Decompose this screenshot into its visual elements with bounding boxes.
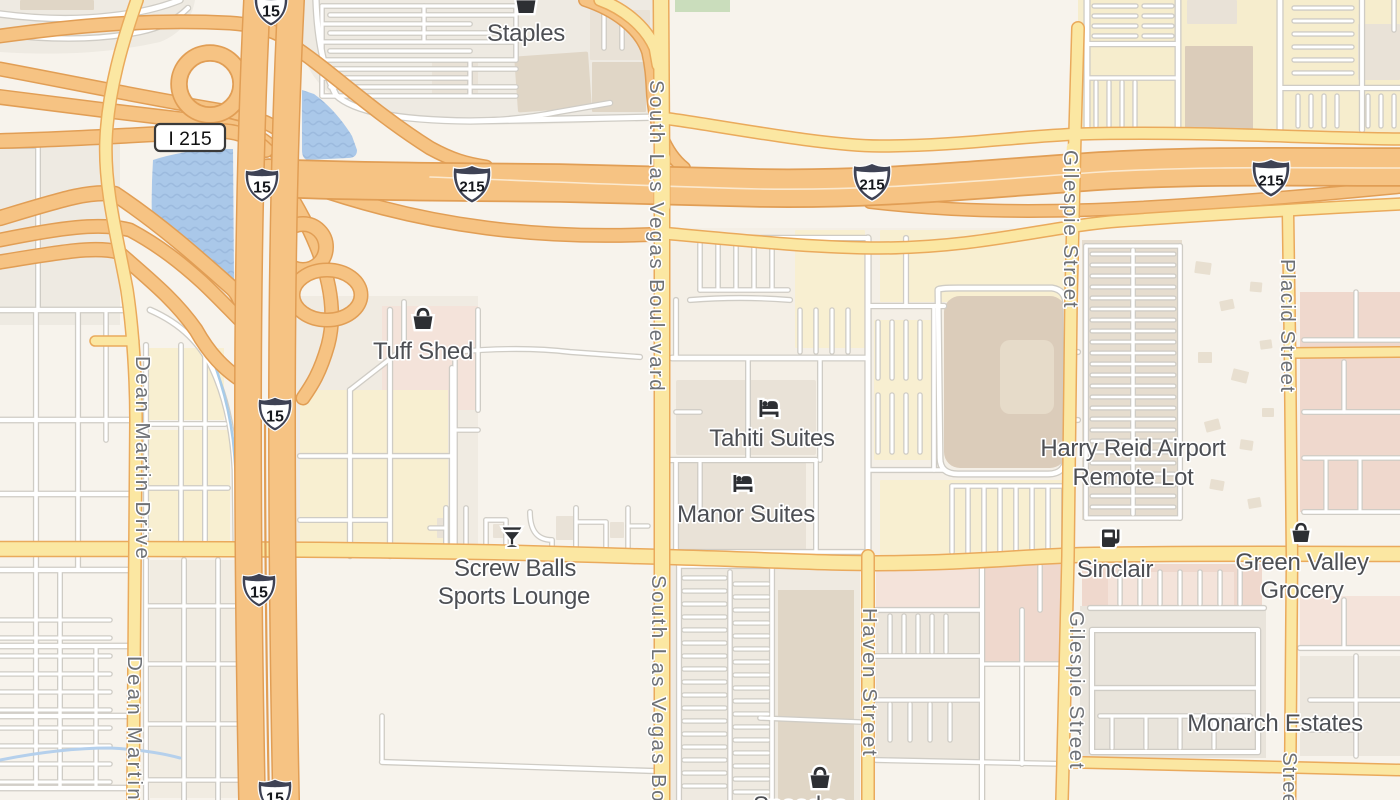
svg-text:Monarch Estates: Monarch Estates: [1187, 710, 1363, 737]
svg-text:15: 15: [253, 179, 271, 196]
svg-text:Dean Martin: Dean Martin: [123, 656, 146, 800]
svg-text:Staples: Staples: [487, 20, 565, 47]
svg-text:Gilespie Street: Gilespie Street: [1065, 611, 1088, 770]
svg-text:15: 15: [266, 408, 284, 425]
svg-text:I 215: I 215: [168, 128, 212, 150]
svg-text:Tuff Shed: Tuff Shed: [373, 338, 473, 365]
svg-text:South Las Vegas Bo: South Las Vegas Bo: [647, 575, 670, 800]
svg-text:215: 215: [459, 178, 484, 195]
svg-text:15: 15: [250, 584, 268, 601]
svg-text:Remote Lot: Remote Lot: [1072, 464, 1194, 491]
svg-text:Sinclair: Sinclair: [1077, 556, 1154, 583]
svg-text:Screw Balls: Screw Balls: [454, 555, 576, 582]
svg-text:Dean Martin Drive: Dean Martin Drive: [131, 356, 154, 561]
svg-text:Green Valley: Green Valley: [1235, 549, 1369, 576]
svg-text:Placid Street: Placid Street: [1276, 259, 1299, 393]
svg-text:15: 15: [262, 3, 280, 20]
svg-text:Street: Street: [1278, 752, 1301, 800]
svg-text:Harry Reid Airport: Harry Reid Airport: [1040, 435, 1226, 462]
svg-text:Sports Lounge: Sports Lounge: [438, 583, 590, 610]
svg-text:15: 15: [266, 790, 284, 800]
svg-text:Speedee: Speedee: [753, 792, 847, 800]
svg-text:Tahiti Suites: Tahiti Suites: [709, 425, 835, 452]
svg-text:215: 215: [859, 176, 884, 193]
svg-text:215: 215: [1258, 172, 1283, 189]
svg-text:Haven Street: Haven Street: [858, 608, 881, 758]
svg-text:Gilespie Street: Gilespie Street: [1059, 150, 1082, 309]
svg-text:South Las Vegas Boulevard: South Las Vegas Boulevard: [645, 80, 668, 393]
svg-text:Grocery: Grocery: [1260, 577, 1344, 604]
svg-text:Manor Suites: Manor Suites: [677, 501, 815, 528]
